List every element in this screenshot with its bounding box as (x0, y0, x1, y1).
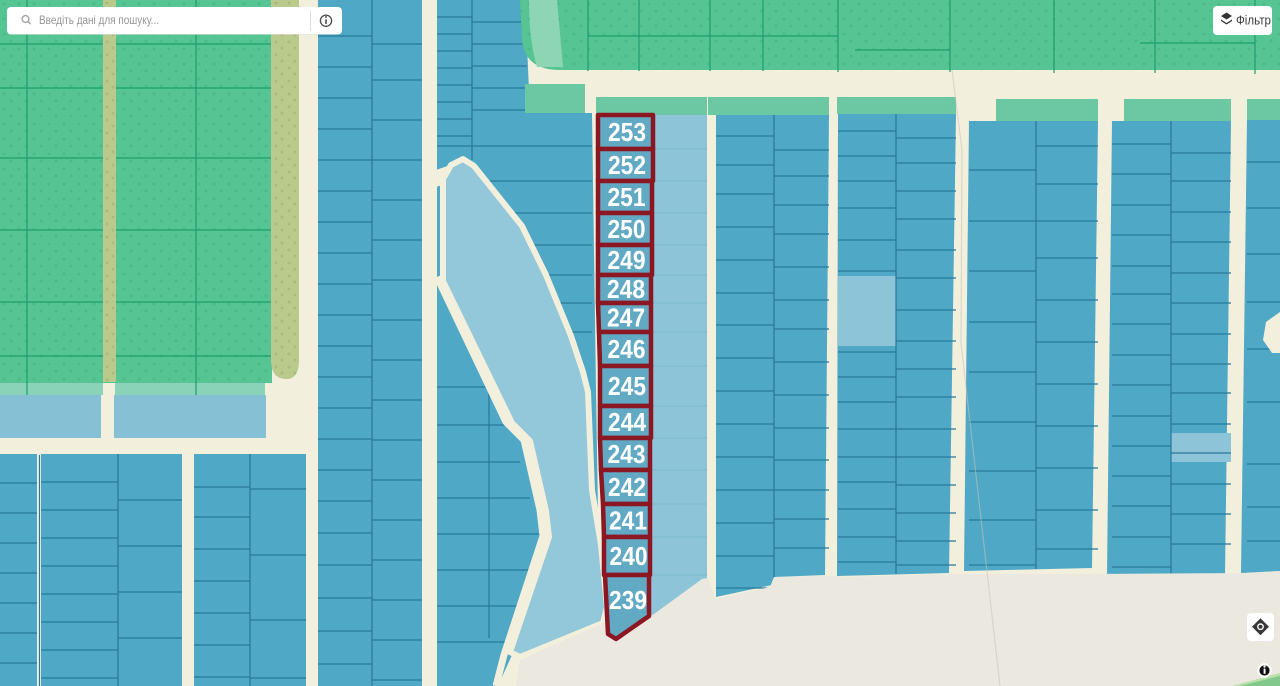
svg-text:243: 243 (608, 441, 646, 469)
svg-text:248: 248 (607, 276, 645, 304)
svg-text:Фільтр: Фільтр (1236, 14, 1271, 28)
svg-text:251: 251 (608, 184, 646, 212)
svg-text:241: 241 (609, 508, 647, 536)
svg-text:239: 239 (609, 587, 647, 615)
svg-text:244: 244 (608, 409, 647, 437)
svg-text:253: 253 (608, 119, 646, 147)
svg-text:250: 250 (608, 216, 646, 244)
svg-text:246: 246 (608, 336, 646, 364)
svg-text:240: 240 (610, 543, 648, 571)
svg-text:249: 249 (608, 247, 646, 275)
svg-text:252: 252 (608, 152, 646, 180)
svg-text:Введіть дані для пошуку...: Введіть дані для пошуку... (39, 13, 159, 27)
svg-text:242: 242 (608, 474, 646, 502)
svg-text:245: 245 (608, 373, 646, 401)
svg-text:247: 247 (607, 305, 645, 333)
